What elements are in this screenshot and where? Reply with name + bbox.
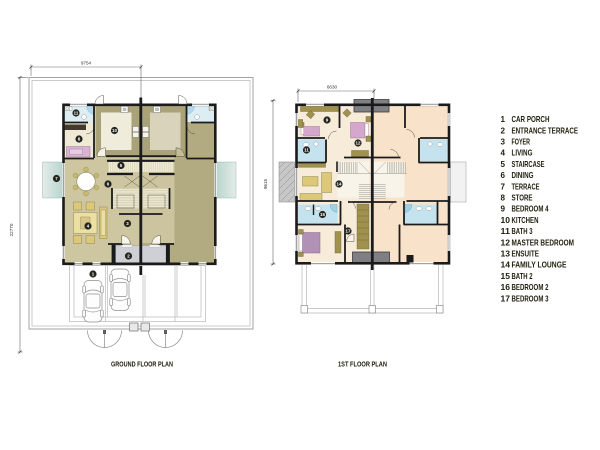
- svg-text:BATH 2: BATH 2: [512, 271, 533, 281]
- svg-text:9615: 9615: [263, 178, 268, 189]
- svg-text:10: 10: [112, 128, 117, 133]
- svg-text:STORE: STORE: [512, 193, 533, 203]
- svg-text:10: 10: [501, 215, 511, 225]
- svg-text:15: 15: [320, 212, 325, 217]
- svg-text:22770: 22770: [9, 223, 14, 236]
- svg-text:17: 17: [346, 229, 351, 234]
- svg-text:MASTER BEDROOM: MASTER BEDROOM: [512, 237, 575, 247]
- svg-text:14: 14: [501, 260, 511, 270]
- svg-text:12: 12: [501, 237, 511, 247]
- svg-text:FOYER: FOYER: [512, 137, 531, 147]
- svg-text:2: 2: [501, 125, 506, 135]
- svg-text:8: 8: [501, 193, 506, 203]
- svg-text:BEDROOM 3: BEDROOM 3: [512, 293, 549, 303]
- svg-text:4: 4: [501, 148, 506, 158]
- svg-text:6630: 6630: [327, 85, 338, 90]
- svg-text:13: 13: [501, 249, 511, 259]
- svg-text:BATH 3: BATH 3: [512, 226, 533, 236]
- svg-text:11: 11: [74, 111, 79, 116]
- svg-text:5: 5: [501, 159, 506, 169]
- svg-text:3: 3: [501, 137, 506, 147]
- svg-text:ENTRANCE TERRACE: ENTRANCE TERRACE: [512, 125, 579, 135]
- svg-text:7: 7: [501, 181, 506, 191]
- svg-text:BEDROOM 2: BEDROOM 2: [512, 282, 549, 292]
- svg-text:9: 9: [501, 204, 506, 214]
- svg-text:GROUND FLOOR PLAN: GROUND FLOOR PLAN: [111, 360, 173, 369]
- svg-text:6: 6: [501, 170, 506, 180]
- svg-text:BEDROOM 4: BEDROOM 4: [512, 204, 549, 214]
- svg-text:ENSUITE: ENSUITE: [512, 249, 540, 259]
- svg-text:1: 1: [501, 114, 506, 124]
- svg-text:LIVING: LIVING: [512, 148, 533, 158]
- svg-text:9754: 9754: [81, 61, 92, 66]
- svg-text:16: 16: [501, 282, 511, 292]
- svg-text:11: 11: [304, 148, 309, 153]
- svg-text:15: 15: [501, 271, 511, 281]
- svg-text:17: 17: [501, 293, 511, 303]
- svg-text:DINING: DINING: [512, 170, 534, 180]
- svg-text:TERRACE: TERRACE: [512, 181, 540, 191]
- svg-text:FAMILY LOUNGE: FAMILY LOUNGE: [512, 260, 567, 270]
- svg-text:1ST FLOOR PLAN: 1ST FLOOR PLAN: [338, 360, 387, 369]
- svg-text:KITCHEN: KITCHEN: [512, 215, 539, 225]
- svg-text:STAIRCASE: STAIRCASE: [512, 159, 545, 169]
- svg-text:11: 11: [501, 226, 511, 236]
- svg-text:12: 12: [356, 141, 361, 146]
- svg-text:14: 14: [337, 182, 342, 187]
- svg-text:CAR PORCH: CAR PORCH: [512, 114, 550, 124]
